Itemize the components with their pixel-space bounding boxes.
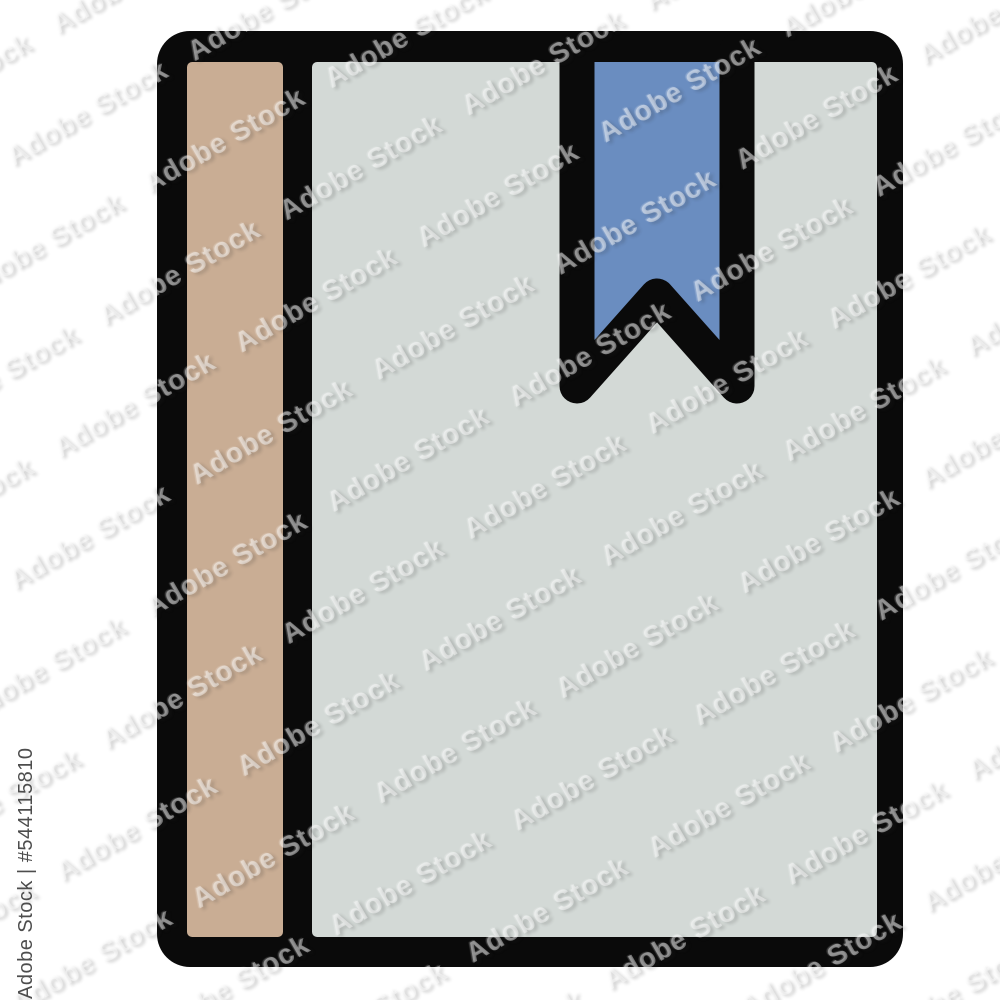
book-spine xyxy=(187,62,283,937)
stock-id-watermark-label: Adobe Stock | #544115810 xyxy=(15,748,38,999)
bookmarked-book-icon xyxy=(0,0,1000,1000)
stock-preview-canvas: Adobe StockAdobe StockAdobe StockAdobe S… xyxy=(0,0,1000,1000)
